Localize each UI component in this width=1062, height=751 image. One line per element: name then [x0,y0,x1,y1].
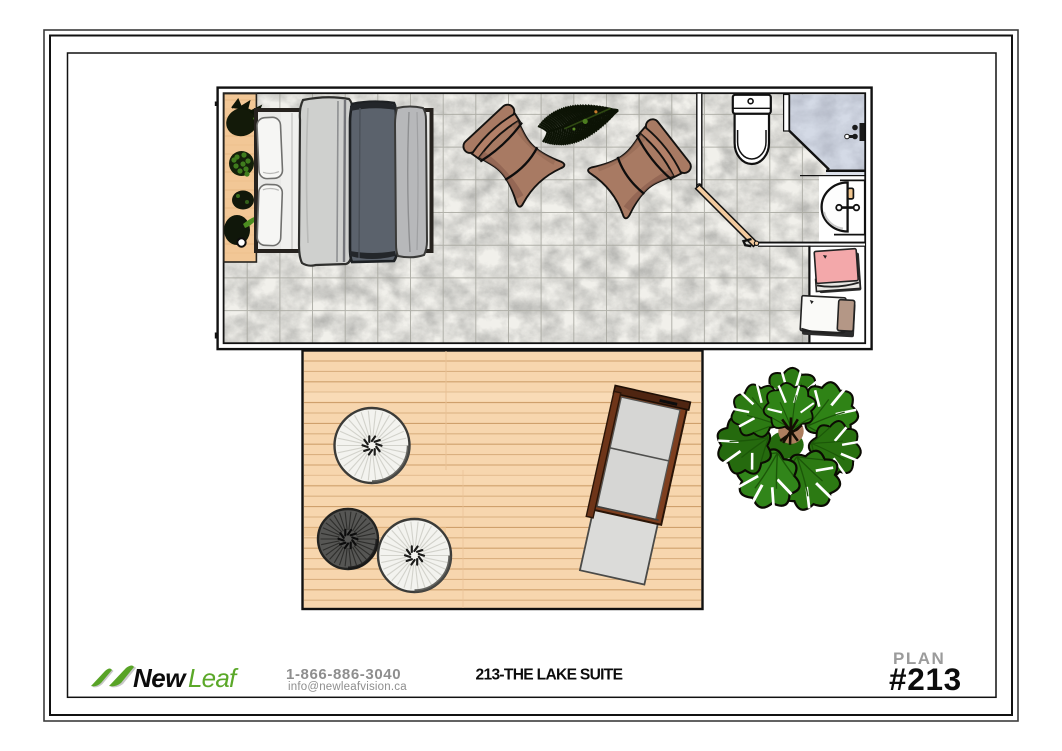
svg-text:#213: #213 [889,661,962,697]
svg-text:Leaf: Leaf [188,663,239,693]
svg-text:info@newleafvision.ca: info@newleafvision.ca [288,681,407,693]
svg-text:New: New [133,663,187,693]
svg-text:213-THE LAKE SUITE: 213-THE LAKE SUITE [476,666,623,683]
